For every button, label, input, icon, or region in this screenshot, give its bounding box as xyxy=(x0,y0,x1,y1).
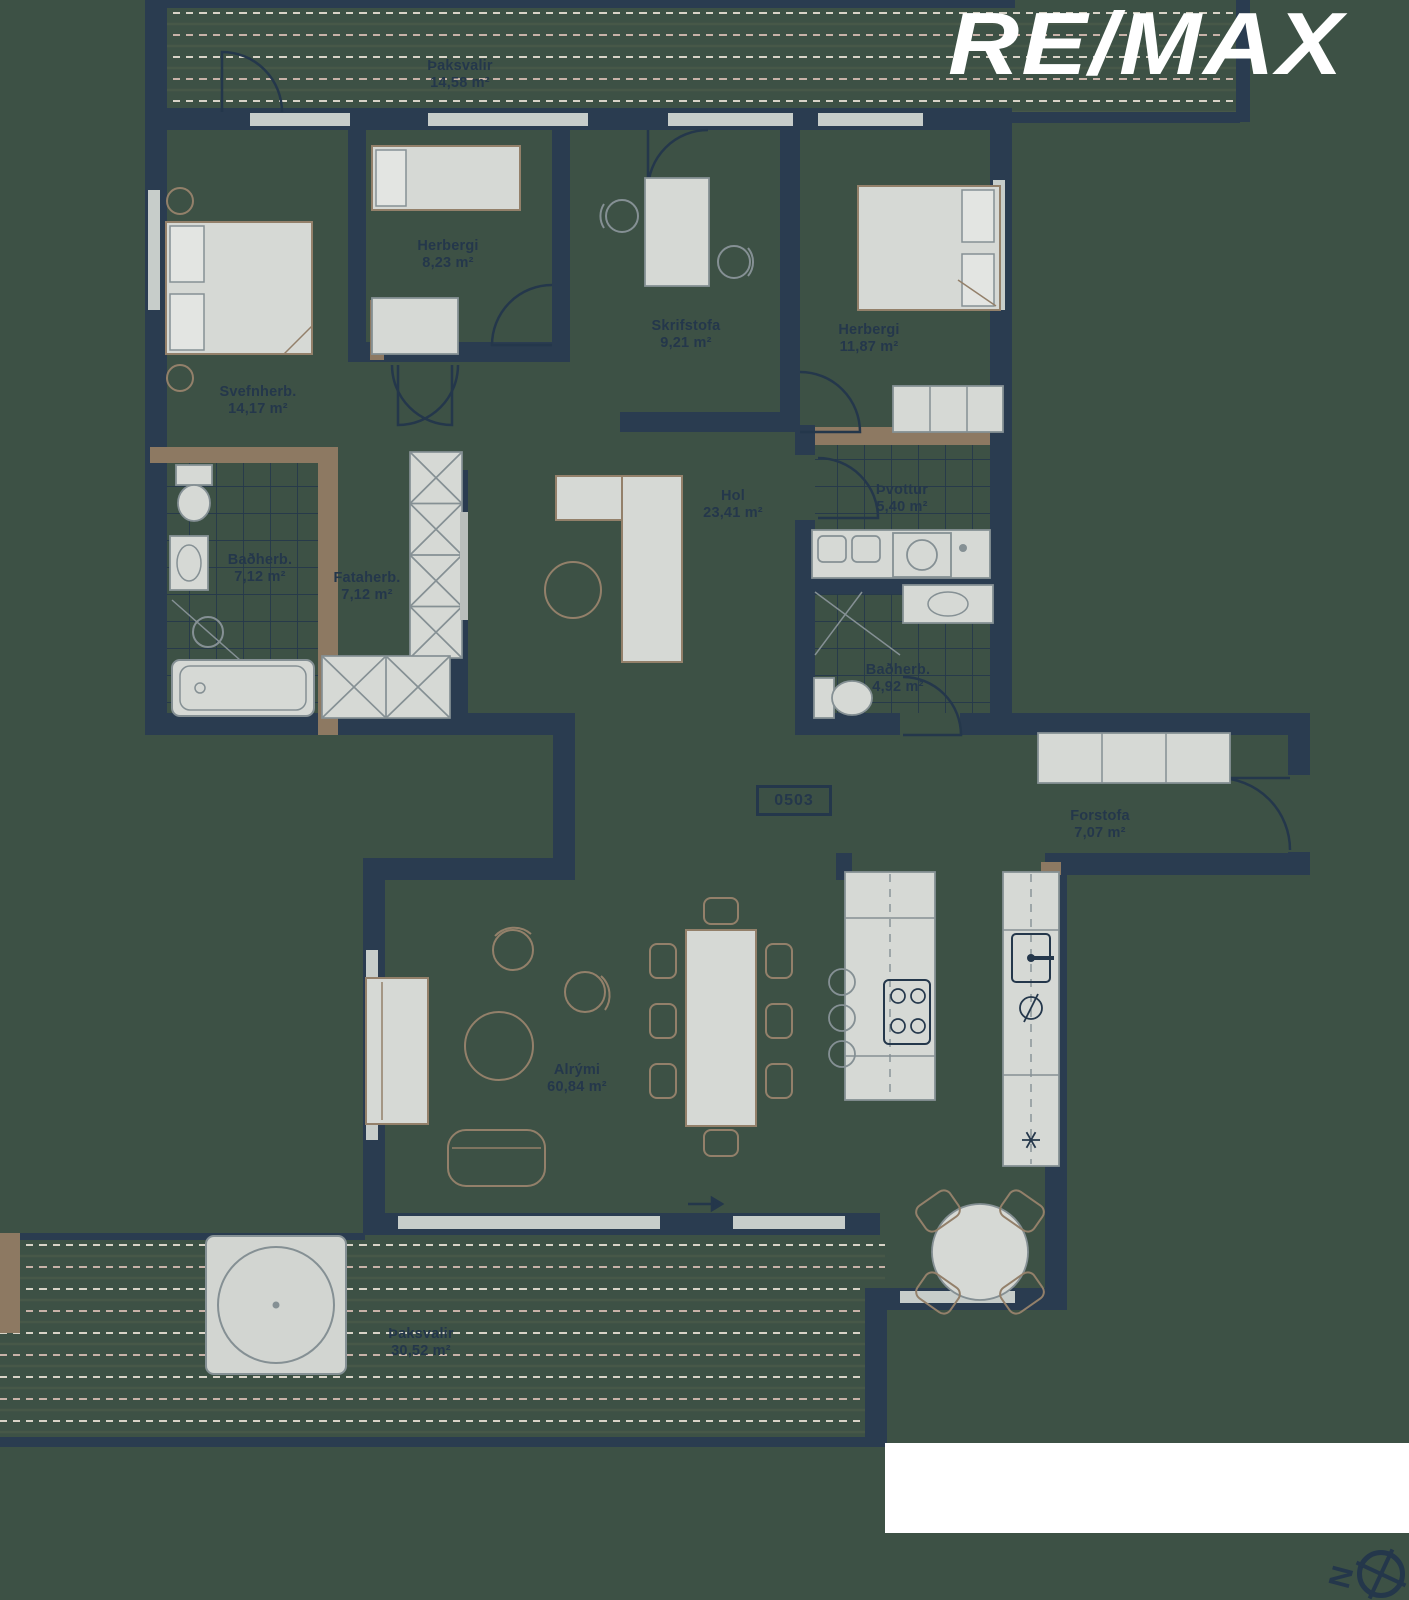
exit-arrow-icon xyxy=(688,1198,722,1210)
desk xyxy=(645,178,709,286)
entry-cabinet xyxy=(1038,733,1230,783)
floorplan-drawing: N xyxy=(0,0,1409,1600)
armchair2 xyxy=(565,972,605,1012)
room-label-skrifstofa: Skrifstofa9,21 m² xyxy=(652,318,721,352)
compass-letter: N xyxy=(1323,1562,1360,1591)
bedroom2-furniture xyxy=(858,186,1003,432)
dining-furniture xyxy=(650,898,792,1156)
master-bedroom-furniture xyxy=(166,188,312,391)
hot-tub xyxy=(206,1236,346,1374)
sink xyxy=(170,536,208,590)
laundry-fixtures xyxy=(812,530,990,578)
room-label-herbergi-2: Herbergi11,87 m² xyxy=(838,322,899,356)
room-label-fataherb: Fataherb.7,12 m² xyxy=(333,570,400,604)
sofa xyxy=(366,978,428,1124)
toilet2-tank xyxy=(814,678,834,718)
room-label-thaksvalir-top: Þaksvalir14,58 m² xyxy=(427,58,493,92)
armchair xyxy=(493,930,533,970)
floorplan-page: N Þaksvalir14,58 m² Herbergi8,23 m² Skri… xyxy=(0,0,1409,1600)
toilet xyxy=(176,465,212,485)
remax-logo: RE/MAX xyxy=(948,0,1345,94)
room-label-badherb-1: Baðherb.7,12 m² xyxy=(228,552,292,586)
sink2-counter xyxy=(903,585,993,623)
bathtub xyxy=(172,660,314,716)
hall-furniture xyxy=(460,476,682,662)
kitchen-island xyxy=(829,872,935,1100)
room-label-herbergi-1: Herbergi8,23 m² xyxy=(417,238,478,272)
unit-number-badge: 0503 xyxy=(756,785,832,816)
room-label-hol: Hol23,41 m² xyxy=(703,488,763,522)
living-room-furniture xyxy=(366,928,610,1186)
room-label-svefnherb: Svefnherb.14,17 m² xyxy=(220,384,297,418)
room-label-alrymi: Alrými60,84 m² xyxy=(547,1062,607,1096)
dresser xyxy=(893,386,1003,432)
wardrobe xyxy=(372,298,458,354)
dining-table xyxy=(686,930,756,1126)
room-label-forstofa: Forstofa7,07 m² xyxy=(1070,808,1130,842)
room-label-badherb-2: Baðherb.4,92 m² xyxy=(866,662,930,696)
room-label-thvottur: Þvottur5,40 m² xyxy=(876,482,928,516)
entry-furniture xyxy=(1038,733,1230,783)
compass-icon: N xyxy=(1323,1538,1409,1600)
bench xyxy=(448,1130,545,1186)
room-label-thaksvalir-bottom: Þaksvalir30,52 m² xyxy=(388,1326,454,1360)
page-cutout xyxy=(885,1443,1409,1533)
coffee-table xyxy=(465,1012,533,1080)
office-furniture xyxy=(600,178,753,286)
kitchen-counter xyxy=(1003,872,1059,1166)
laundry-counter xyxy=(812,530,990,578)
pouf xyxy=(545,562,601,618)
round-table xyxy=(932,1204,1028,1300)
